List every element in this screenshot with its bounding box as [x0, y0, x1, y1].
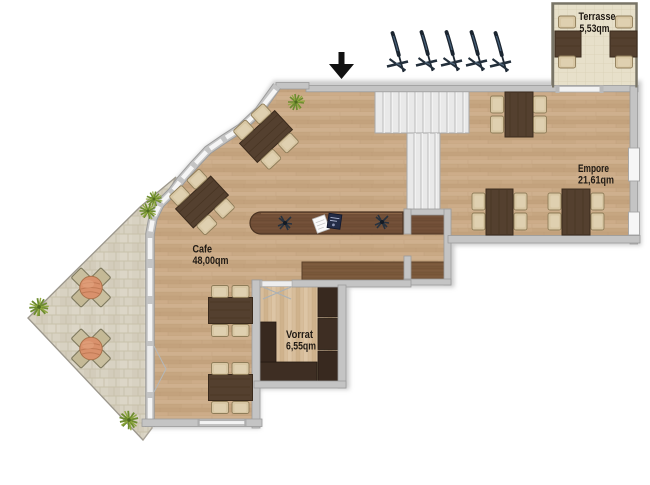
- svg-text:48,00qm: 48,00qm: [193, 255, 229, 267]
- svg-text:5,53qm: 5,53qm: [580, 23, 610, 35]
- svg-text:Empore: Empore: [578, 163, 609, 175]
- svg-text:21,61qm: 21,61qm: [578, 175, 614, 187]
- svg-text:6,55qm: 6,55qm: [286, 341, 316, 353]
- svg-text:Cafe: Cafe: [193, 244, 213, 256]
- svg-text:Terrasse: Terrasse: [579, 11, 616, 23]
- svg-text:Vorrat: Vorrat: [286, 329, 313, 341]
